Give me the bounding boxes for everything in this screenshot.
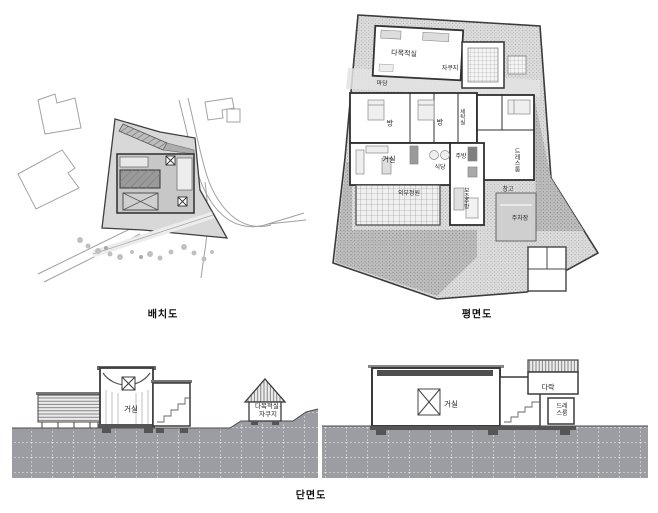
multipurpose-annex xyxy=(373,26,463,81)
floor-plan-drawing xyxy=(322,12,612,304)
label-living-room-plan: 거실 xyxy=(383,157,396,164)
site-plan-caption: 배치도 xyxy=(148,306,179,321)
label-multipurpose-room: 다목적실 xyxy=(391,50,417,58)
section-left-wing xyxy=(36,392,102,428)
label-section-living-right: 거실 xyxy=(444,400,458,408)
section-left-stair-volume xyxy=(151,380,192,433)
label-outdoor-garden: 외부정원 xyxy=(398,191,420,197)
label-kitchen: 주방 xyxy=(455,154,466,160)
storage-shed xyxy=(528,247,566,291)
label-storage: 창고 xyxy=(502,187,513,193)
label-jacuzzi: 자쿠지 xyxy=(442,66,459,72)
label-section-hut: 다목적실·자쿠지 xyxy=(253,403,283,419)
label-room-right: 방 xyxy=(437,120,443,127)
label-yard: 마당 xyxy=(376,81,387,88)
section-right-hall xyxy=(368,365,504,426)
label-parking: 주차장 xyxy=(512,216,529,222)
section-left-hall xyxy=(97,366,156,433)
label-section-living-left: 거실 xyxy=(124,405,138,413)
architectural-drawing-sheet: 배치도 평면도 단면도 다목적실 자쿠지 마당 방 방 세탁실 거실 식당 주방… xyxy=(0,0,658,513)
label-dining: 식당 xyxy=(434,165,445,171)
label-room-left: 방 xyxy=(387,121,393,128)
label-dress-room-plan: 드레스룸 xyxy=(513,148,519,172)
label-section-attic: 다락 xyxy=(542,385,555,392)
trees xyxy=(77,237,214,262)
label-section-dress-room: 드레스룸 xyxy=(555,404,570,418)
section-caption: 단면도 xyxy=(296,487,327,502)
label-laundry: 세탁실 xyxy=(458,109,464,126)
ground-right xyxy=(322,426,648,478)
floor-plan-caption: 평면도 xyxy=(462,306,493,321)
site-plan-drawing xyxy=(8,82,310,304)
label-aux-kitchen: 보조주방 xyxy=(462,187,468,209)
